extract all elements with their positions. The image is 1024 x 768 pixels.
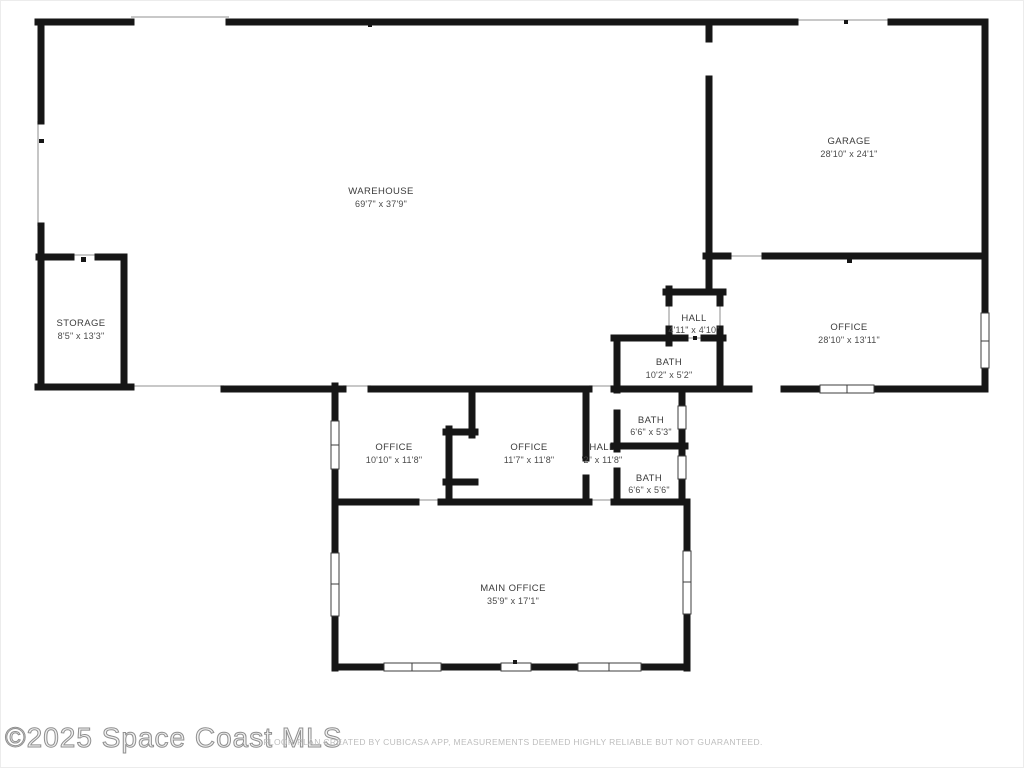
- room-label-office-right: OFFICE 28'10" x 13'11": [818, 322, 880, 345]
- room-name: MAIN OFFICE: [480, 583, 546, 594]
- room-name: OFFICE: [830, 322, 867, 333]
- room-name: BATH: [656, 357, 682, 368]
- room-label-bath-large: BATH 10'2" x 5'2": [646, 357, 693, 380]
- room-dims: 28'10" x 13'11": [818, 335, 880, 345]
- room-name: GARAGE: [827, 136, 870, 147]
- room-dims: 10'2" x 5'2": [646, 370, 693, 380]
- room-dims: 35'9" x 17'1": [487, 596, 539, 606]
- room-dims: 4'11" x 4'10": [668, 325, 719, 335]
- room-label-storage: STORAGE 8'5" x 13'3": [56, 318, 105, 341]
- room-label-bath-lower: BATH 6'6" x 5'6": [628, 473, 670, 495]
- room-label-main-office: MAIN OFFICE 35'9" x 17'1": [480, 583, 546, 606]
- room-dims: 8'5" x 13'3": [58, 331, 105, 341]
- disclaimer-text: FLOOR PLAN CREATED BY CUBICASA APP, MEAS…: [263, 737, 762, 747]
- room-name: WAREHOUSE: [348, 186, 414, 197]
- room-name: OFFICE: [375, 442, 412, 453]
- room-name: BATH: [636, 473, 662, 484]
- room-dims: 69'7" x 37'9": [355, 199, 407, 209]
- room-label-office-left: OFFICE 10'10" x 11'8": [366, 442, 423, 465]
- room-name: OFFICE: [510, 442, 547, 453]
- door-ticks: [39, 20, 852, 664]
- room-label-hall-upper: HALL 4'11" x 4'10": [668, 313, 719, 335]
- room-name: BATH: [638, 415, 664, 426]
- garage-walls: [706, 26, 985, 292]
- room-label-bath-mid: BATH 6'6" x 5'3": [630, 415, 672, 437]
- floor-plan-page: WAREHOUSE 69'7" x 37'9" GARAGE 28'10" x …: [0, 0, 1024, 768]
- room-dims: 28'10" x 24'1": [820, 149, 877, 159]
- floor-plan-canvas: WAREHOUSE 69'7" x 37'9" GARAGE 28'10" x …: [1, 1, 1024, 768]
- room-name: HALL: [681, 313, 706, 324]
- room-name: STORAGE: [56, 318, 105, 329]
- room-dims: '2" x 11'8": [582, 455, 623, 465]
- room-dims: 6'6" x 5'3": [630, 427, 672, 437]
- room-label-garage: GARAGE 28'10" x 24'1": [820, 136, 877, 159]
- room-dims: 11'7" x 11'8": [504, 455, 555, 465]
- room-dims: 6'6" x 5'6": [628, 485, 670, 495]
- room-label-warehouse: WAREHOUSE 69'7" x 37'9": [348, 186, 414, 209]
- room-name: HALL: [589, 442, 614, 453]
- room-label-office-center: OFFICE 11'7" x 11'8": [504, 442, 555, 465]
- room-dims: 10'10" x 11'8": [366, 455, 423, 465]
- exterior-walls: [38, 22, 985, 389]
